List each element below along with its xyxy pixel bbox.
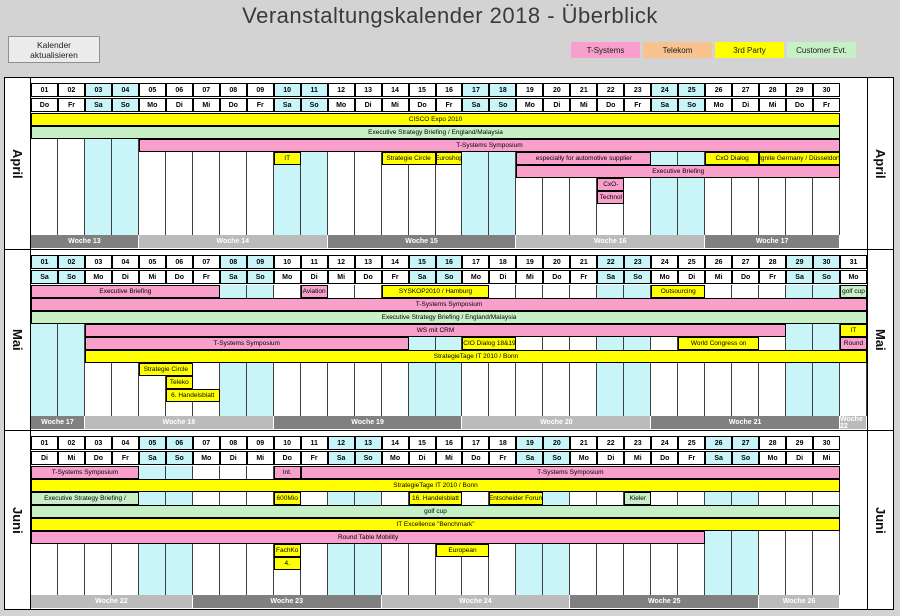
weekday-cell: Mi [139, 270, 166, 284]
event-bar[interactable]: Executive Briefing [516, 165, 840, 178]
weekday-cell: Fr [570, 270, 597, 284]
weekday-cell: Di [112, 270, 139, 284]
event-bar[interactable]: Aviation [301, 285, 328, 298]
weekday-cell: Mi [570, 98, 597, 112]
event-row: IT Excellence "Benchmark" [31, 518, 867, 531]
event-row: T-Systems Symposium [31, 298, 867, 311]
weekday-cell: Mi [705, 270, 732, 284]
day-number-cell: 20 [543, 83, 570, 97]
weekday-cell: Di [355, 98, 382, 112]
day-number-cell: 05 [139, 83, 166, 97]
event-bar[interactable]: European [436, 544, 490, 557]
day-number-cell: 28 [759, 255, 786, 269]
day-number-cell: 08 [220, 83, 247, 97]
event-bar[interactable]: CxO- [597, 178, 624, 191]
day-number-cell: 21 [570, 436, 597, 450]
day-number-cell: 26 [705, 255, 732, 269]
month-label-mai-right: Mai [867, 250, 893, 430]
event-bar[interactable]: CIO Dialog 18&19 [462, 337, 516, 350]
day-number-cell: 06 [166, 436, 193, 450]
day-number-cell: 14 [382, 83, 409, 97]
day-number-cell: 29 [786, 255, 813, 269]
day-number-cell: 15 [409, 436, 436, 450]
day-number-cell: 08 [220, 436, 247, 450]
weekday-cell: Mo [328, 98, 355, 112]
weekday-cell: So [247, 270, 274, 284]
event-bar[interactable]: IT [274, 152, 301, 165]
day-number-cell: 07 [193, 436, 220, 450]
day-number-cell: 26 [705, 436, 732, 450]
weekday-cell: Mi [328, 270, 355, 284]
weekday-cell: Do [220, 98, 247, 112]
day-number-cell: 24 [651, 436, 678, 450]
weekday-cell: Di [220, 451, 247, 465]
day-number-cell: 17 [462, 255, 489, 269]
month-section-juni: Juni010203040506070809101112131415161718… [5, 430, 893, 609]
week-segment: Woche 24 [382, 595, 571, 608]
weekday-cell: Do [355, 270, 382, 284]
day-number-cell: 18 [489, 83, 516, 97]
month-label-mai-left: Mai [5, 250, 31, 430]
event-bar[interactable]: Executive Strategy Briefing / England/Ma… [31, 311, 867, 324]
event-bar[interactable]: SYSKOP2010 / Hamburg [382, 285, 490, 298]
weekday-cell: Do [85, 451, 112, 465]
day-number-cell: 18 [489, 436, 516, 450]
day-number-cell: 06 [166, 83, 193, 97]
day-number-cell: 10 [274, 255, 301, 269]
weekday-cell: Fr [382, 270, 409, 284]
weekday-cell: Do [166, 270, 193, 284]
weekday-cell: Di [166, 98, 193, 112]
month-label-juni-left: Juni [5, 431, 31, 609]
day-number-cell: 23 [624, 436, 651, 450]
day-number-cell: 07 [193, 255, 220, 269]
event-bar[interactable]: StrategieTage IT 2010 / Bonn [31, 479, 840, 492]
weekday-cell: Di [786, 451, 813, 465]
weekday-cell: Di [489, 270, 516, 284]
day-number-cell: 28 [759, 436, 786, 450]
weekday-cell: Di [31, 451, 58, 465]
weekday-cell: Fr [436, 98, 463, 112]
week-segment: Woche 22 [840, 416, 867, 429]
day-number-cell: 16 [436, 83, 463, 97]
day-number-cell: 29 [786, 83, 813, 97]
day-number-cell: 21 [570, 255, 597, 269]
month-body-mai: Executive BriefingAviationSYSKOP2010 / H… [31, 285, 867, 416]
weekday-cell: Fr [759, 270, 786, 284]
weekday-cell: Mi [759, 98, 786, 112]
day-number-cell: 16 [436, 436, 463, 450]
day-number-cell: 23 [624, 255, 651, 269]
day-number-row: 0102030405060708091011121314151617181920… [31, 83, 867, 97]
month-body-april: CISCO Expo 2010Executive Strategy Briefi… [31, 113, 867, 235]
weekday-cell: Mo [382, 451, 409, 465]
weekday-cell: Mo [516, 98, 543, 112]
day-number-cell: 20 [543, 255, 570, 269]
day-number-cell: 30 [813, 83, 840, 97]
month-label-april-left: April [5, 78, 31, 249]
weekday-cell: Do [274, 451, 301, 465]
event-bar[interactable]: Int. [274, 466, 301, 479]
refresh-calendar-button[interactable]: Kalender aktualisieren [8, 36, 100, 63]
day-number-cell: 22 [597, 83, 624, 97]
day-number-cell: 25 [678, 83, 705, 97]
day-number-cell: 28 [759, 83, 786, 97]
month-label-text: Mai [873, 329, 888, 351]
day-number-cell: 01 [31, 255, 58, 269]
event-bar[interactable]: Round Table Mobility [31, 531, 705, 544]
event-bar[interactable]: 4. [274, 557, 301, 570]
month-grid-mai: 0102030405060708091011121314151617181920… [31, 250, 867, 430]
weekday-cell: Fr [247, 98, 274, 112]
event-bar[interactable]: especially for automotive supplier [516, 152, 651, 165]
day-number-cell: 29 [786, 436, 813, 450]
weekday-cell: Mi [247, 451, 274, 465]
calendar: April01020304050607080910111213141516171… [4, 77, 894, 610]
month-label-april-right: April [867, 78, 893, 249]
weekday-cell: Fr [489, 451, 516, 465]
weekday-cell: Mi [516, 270, 543, 284]
day-number-cell: 08 [220, 255, 247, 269]
event-row: T-Systems Symposium [31, 139, 867, 152]
day-number-cell: 02 [58, 83, 85, 97]
event-bar[interactable]: Technol [597, 191, 624, 204]
month-label-juni-right: Juni [867, 431, 893, 609]
legend-item-t-systems: T-Systems [571, 42, 640, 58]
weekday-cell: Sa [462, 98, 489, 112]
week-segment: Woche 17 [705, 235, 840, 248]
day-number-cell: 17 [462, 436, 489, 450]
day-number-cell: 07 [193, 83, 220, 97]
weekday-cell: Di [678, 270, 705, 284]
month-grid-juni: 0102030405060708091011121314151617181920… [31, 431, 867, 609]
weekday-cell: Do [597, 98, 624, 112]
event-bar[interactable]: Kieler [624, 492, 651, 505]
weekday-cell: So [166, 451, 193, 465]
day-number-cell: 15 [409, 255, 436, 269]
weekday-cell: Mi [193, 98, 220, 112]
day-number-cell: 13 [355, 255, 382, 269]
event-bar[interactable]: CISCO Expo 2010 [31, 113, 840, 126]
weekday-cell: So [489, 98, 516, 112]
day-number-cell: 30 [813, 436, 840, 450]
day-number-cell: 11 [301, 83, 328, 97]
day-number-cell: 14 [382, 255, 409, 269]
day-number-cell: 31 [840, 255, 867, 269]
week-segment: Woche 19 [274, 416, 463, 429]
event-bar[interactable]: Ignite Germany / Düsseldorf [759, 152, 840, 165]
weekday-cell: Do [651, 451, 678, 465]
event-row: Executive Strategy Briefing / England/Ma… [31, 311, 867, 324]
legend-item-telekom: Telekom [643, 42, 712, 58]
week-bar: Woche 13Woche 14Woche 15Woche 16Woche 17 [31, 235, 867, 248]
day-number-cell: 19 [516, 436, 543, 450]
day-number-cell: 01 [31, 436, 58, 450]
event-bar[interactable]: T-Systems Symposium [31, 466, 139, 479]
day-number-cell: 13 [355, 436, 382, 450]
event-bar[interactable]: golf cup [840, 285, 867, 298]
weekday-cell: Do [732, 270, 759, 284]
page-title: Veranstaltungskalender 2018 - Überblick [0, 3, 900, 29]
day-number-cell: 25 [678, 255, 705, 269]
weekday-row: DiMiDoFrSaSoMoDiMiDoFrSaSoMoDiMiDoFrSaSo… [31, 451, 867, 465]
weekday-cell: Sa [651, 98, 678, 112]
legend: T-Systems Telekom 3rd Party Customer Evt… [571, 42, 856, 58]
event-bar[interactable]: 6. Handelsblatt [166, 389, 220, 402]
event-row: CISCO Expo 2010 [31, 113, 867, 126]
day-number-cell: 12 [328, 436, 355, 450]
day-number-cell: 05 [139, 436, 166, 450]
weekday-cell: So [543, 451, 570, 465]
month-body-juni: T-Systems SymposiumInt.T-Systems Symposi… [31, 466, 867, 595]
event-bar[interactable]: Outsourcing [651, 285, 705, 298]
day-number-cell: 11 [301, 436, 328, 450]
weekday-cell: Mo [462, 270, 489, 284]
weekday-cell: Sa [85, 98, 112, 112]
weekday-cell: Fr [678, 451, 705, 465]
weekday-cell: Mi [382, 98, 409, 112]
event-bar[interactable]: Teleko [166, 376, 193, 389]
weekday-cell: So [624, 270, 651, 284]
week-bar: Woche 22Woche 23Woche 24Woche 25Woche 26 [31, 595, 867, 608]
event-bar[interactable]: World Congress on [678, 337, 759, 350]
weekday-cell: Mo [651, 270, 678, 284]
event-bar[interactable]: CxO Dialog [705, 152, 759, 165]
weekday-cell: Mo [193, 451, 220, 465]
day-number-cell: 01 [31, 83, 58, 97]
weekday-cell: Do [543, 270, 570, 284]
month-section-mai: Mai0102030405060708091011121314151617181… [5, 249, 893, 430]
event-bar[interactable]: Euroshop [436, 152, 463, 165]
weekday-cell: Fr [193, 270, 220, 284]
weekday-cell: Mo [840, 270, 867, 284]
event-bar[interactable]: T-Systems Symposium [31, 298, 867, 311]
weekday-cell: Mi [436, 451, 463, 465]
weekday-cell: Sa [786, 270, 813, 284]
day-number-cell: 04 [112, 436, 139, 450]
weekday-cell: Mo [759, 451, 786, 465]
day-number-cell: 27 [732, 83, 759, 97]
event-bar[interactable]: golf cup [31, 505, 840, 518]
event-bar[interactable]: 600Mio [274, 492, 301, 505]
day-number-cell: 15 [409, 83, 436, 97]
day-number-cell: 09 [247, 83, 274, 97]
month-label-text: Juni [873, 507, 888, 534]
weekday-cell: Di [597, 451, 624, 465]
event-bar[interactable]: Strategie Circle [139, 363, 193, 376]
week-bar: Woche 17Woche 18Woche 19Woche 20Woche 21… [31, 416, 867, 429]
week-segment: Woche 14 [139, 235, 328, 248]
weekday-cell: Mo [274, 270, 301, 284]
event-bar[interactable]: 16. Handelsblatt [409, 492, 463, 505]
month-label-text: April [10, 149, 25, 179]
weekday-cell: Mo [570, 451, 597, 465]
weekday-cell: Do [462, 451, 489, 465]
day-number-cell: 12 [328, 83, 355, 97]
weekday-cell: Sa [409, 270, 436, 284]
event-row: golf cup [31, 505, 867, 518]
weekday-cell: Do [786, 98, 813, 112]
weekday-cell: Sa [516, 451, 543, 465]
day-number-cell: 12 [328, 255, 355, 269]
day-number-cell: 06 [166, 255, 193, 269]
weekday-cell: So [301, 98, 328, 112]
legend-item-3rd-party: 3rd Party [715, 42, 784, 58]
day-number-cell: 03 [85, 83, 112, 97]
month-section-april: April01020304050607080910111213141516171… [5, 78, 893, 249]
weekday-cell: So [58, 270, 85, 284]
day-number-cell: 16 [436, 255, 463, 269]
weekday-cell: So [813, 270, 840, 284]
weekday-cell: Fr [112, 451, 139, 465]
event-bar[interactable]: IT [840, 324, 867, 337]
event-bar[interactable]: T-Systems Symposium [85, 337, 409, 350]
day-number-cell: 27 [732, 436, 759, 450]
weekday-cell: Sa [220, 270, 247, 284]
day-number-cell: 24 [651, 83, 678, 97]
day-number-cell: 03 [85, 255, 112, 269]
weekday-row: DoFrSaSoMoDiMiDoFrSaSoMoDiMiDoFrSaSoMoDi… [31, 98, 867, 112]
event-bar[interactable]: Executive Briefing [31, 285, 220, 298]
weekday-cell: So [732, 451, 759, 465]
legend-item-customer-evt: Customer Evt. [787, 42, 856, 58]
weekday-cell: Do [31, 98, 58, 112]
day-number-cell: 02 [58, 255, 85, 269]
month-label-text: Mai [10, 329, 25, 351]
weekday-cell: Sa [705, 451, 732, 465]
event-row: StrategieTage IT 2010 / Bonn [31, 479, 867, 492]
weekday-cell: Fr [813, 98, 840, 112]
day-number-cell: 21 [570, 83, 597, 97]
event-bar[interactable]: WS mit CRM [85, 324, 786, 337]
day-number-cell: 18 [489, 255, 516, 269]
week-segment: Woche 23 [193, 595, 382, 608]
day-number-cell: 24 [651, 255, 678, 269]
day-number-cell: 10 [274, 436, 301, 450]
week-segment: Woche 21 [651, 416, 840, 429]
day-number-cell: 05 [139, 255, 166, 269]
weekday-cell: Mi [58, 451, 85, 465]
weekday-cell: Sa [31, 270, 58, 284]
weekday-cell: Sa [274, 98, 301, 112]
weekday-cell: Sa [597, 270, 624, 284]
weekday-cell: Di [543, 98, 570, 112]
day-number-cell: 27 [732, 255, 759, 269]
weekday-cell: Di [409, 451, 436, 465]
weekday-cell: Fr [301, 451, 328, 465]
event-bar[interactable]: StrategieTage IT 2010 / Bonn [85, 350, 867, 363]
month-grid-april: 0102030405060708091011121314151617181920… [31, 78, 867, 249]
day-number-cell: 25 [678, 436, 705, 450]
day-number-cell: 04 [112, 255, 139, 269]
event-bar[interactable]: IT Excellence "Benchmark" [31, 518, 840, 531]
day-number-cell: 23 [624, 83, 651, 97]
day-number-cell: 04 [112, 83, 139, 97]
day-number-cell: 09 [247, 436, 274, 450]
day-number-cell: 13 [355, 83, 382, 97]
day-number-row: 0102030405060708091011121314151617181920… [31, 255, 867, 269]
event-bar[interactable]: Entscheider Forum [489, 492, 543, 505]
weekday-cell: Fr [58, 98, 85, 112]
weekday-cell: Mo [139, 98, 166, 112]
day-number-cell: 14 [382, 436, 409, 450]
week-segment: Woche 20 [462, 416, 651, 429]
day-number-cell: 26 [705, 83, 732, 97]
day-number-cell: 10 [274, 83, 301, 97]
event-bar[interactable]: T-Systems Symposium [301, 466, 840, 479]
weekday-cell: Mo [85, 270, 112, 284]
week-segment: Woche 16 [516, 235, 705, 248]
week-segment: Woche 15 [328, 235, 517, 248]
weekday-cell: So [355, 451, 382, 465]
event-row: WS mit CRMIT [31, 324, 867, 337]
event-bar[interactable]: Round [840, 337, 867, 350]
weekday-cell: Di [732, 98, 759, 112]
month-label-text: Juni [10, 507, 25, 534]
weekday-cell: Do [409, 98, 436, 112]
weekday-cell: So [678, 98, 705, 112]
day-number-cell: 09 [247, 255, 274, 269]
weekday-cell: Mi [813, 451, 840, 465]
month-label-text: April [873, 149, 888, 179]
day-number-cell: 30 [813, 255, 840, 269]
weekday-cell: Sa [328, 451, 355, 465]
event-bar[interactable]: Strategie Circle [382, 152, 436, 165]
week-segment: Woche 18 [85, 416, 274, 429]
day-number-cell: 20 [543, 436, 570, 450]
event-bar[interactable]: Executive Strategy Briefing / [31, 492, 139, 505]
weekday-row: SaSoMoDiMiDoFrSaSoMoDiMiDoFrSaSoMoDiMiDo… [31, 270, 867, 284]
week-segment: Woche 22 [31, 595, 193, 608]
week-segment: Woche 25 [570, 595, 759, 608]
day-number-cell: 19 [516, 83, 543, 97]
day-number-cell: 02 [58, 436, 85, 450]
day-number-cell: 19 [516, 255, 543, 269]
day-number-cell: 17 [462, 83, 489, 97]
day-number-cell: 11 [301, 255, 328, 269]
weekday-cell: Di [301, 270, 328, 284]
day-number-cell: 22 [597, 255, 624, 269]
day-number-cell: 03 [85, 436, 112, 450]
weekday-cell: So [112, 98, 139, 112]
event-bar[interactable]: T-Systems Symposium [139, 139, 840, 152]
weekday-cell: Fr [624, 98, 651, 112]
week-segment: Woche 26 [759, 595, 840, 608]
event-bar[interactable]: Executive Strategy Briefing / England/Ma… [31, 126, 840, 139]
week-segment: Woche 13 [31, 235, 139, 248]
weekday-cell: Mo [705, 98, 732, 112]
event-row: StrategieTage IT 2010 / Bonn [31, 350, 867, 363]
weekday-cell: Sa [139, 451, 166, 465]
weekday-cell: Mi [624, 451, 651, 465]
event-row: Executive Strategy Briefing / England/Ma… [31, 126, 867, 139]
week-segment: Woche 17 [31, 416, 85, 429]
weekday-cell: So [436, 270, 463, 284]
day-number-cell: 22 [597, 436, 624, 450]
event-bar[interactable]: FachKo [274, 544, 301, 557]
day-number-row: 0102030405060708091011121314151617181920… [31, 436, 867, 450]
